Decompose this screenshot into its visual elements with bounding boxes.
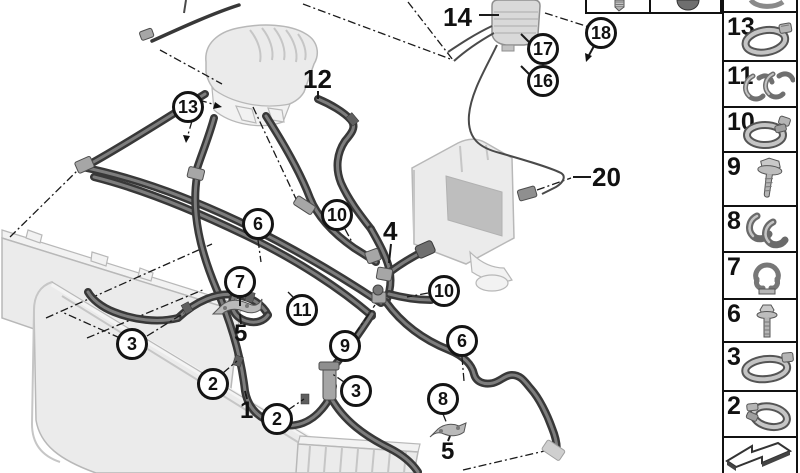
callout-number: 10 [327, 206, 347, 224]
callout-4[interactable]: 4 [383, 218, 397, 244]
holder-clip-icon [739, 255, 795, 297]
callout-number: 6 [457, 332, 467, 350]
flange-screw-icon [739, 154, 795, 204]
callout-10-right[interactable]: 10 [428, 275, 460, 307]
sidebar-item-8[interactable]: 8 [724, 207, 796, 253]
callout-13[interactable]: 13 [172, 91, 204, 123]
callout-number: 7 [235, 273, 245, 291]
sidebar-item-10[interactable]: 10 [724, 108, 796, 153]
prev-page-arrow-icon [724, 439, 794, 473]
callout-number: 3 [351, 382, 361, 400]
spring-clamp-angled-icon [739, 393, 795, 435]
callout-number: 6 [253, 215, 263, 233]
sidebar-item-11[interactable]: 11 [724, 62, 796, 108]
callout-7[interactable]: 7 [224, 266, 256, 298]
callout-20[interactable]: 20 [592, 164, 621, 190]
callout-number: 2 [208, 375, 218, 393]
sidebar-item-13[interactable]: 13 [724, 13, 796, 62]
clamp-pair-icon [739, 208, 795, 250]
sidebar-item-partial[interactable] [724, 0, 796, 13]
callout-number: 10 [434, 282, 454, 300]
callout-16[interactable]: 16 [527, 65, 559, 97]
callout-6-right[interactable]: 6 [446, 325, 478, 357]
intercooler-ghost [412, 139, 514, 291]
sidebar-item-6[interactable]: 6 [724, 300, 796, 343]
bracket-5-bottom [430, 423, 466, 437]
callout-3-left[interactable]: 3 [116, 328, 148, 360]
parts-diagram-page: 13 18 17 16 10 6 7 11 9 10 6 3 2 2 3 8 1… [0, 0, 800, 473]
callout-number: 3 [127, 335, 137, 353]
sensor-20 [517, 186, 537, 202]
callout-12[interactable]: 12 [303, 66, 332, 92]
callout-8[interactable]: 8 [427, 383, 459, 415]
callout-1[interactable]: 1 [240, 399, 253, 423]
clamp-partial-icon [739, 0, 795, 11]
callout-2-right[interactable]: 2 [261, 403, 293, 435]
callout-5-top[interactable]: 5 [234, 322, 247, 346]
sidebar-item-7[interactable]: 7 [724, 253, 796, 300]
sidebar-item-3[interactable]: 3 [724, 343, 796, 392]
callout-11[interactable]: 11 [286, 294, 318, 326]
legend-divider [649, 0, 651, 12]
callout-2-left[interactable]: 2 [197, 368, 229, 400]
flange-bolt-icon [739, 301, 795, 341]
callout-number: 17 [533, 40, 553, 58]
callout-17[interactable]: 17 [527, 33, 559, 65]
callout-number: 18 [591, 24, 611, 42]
callout-number: 2 [272, 410, 282, 428]
air-filter-ghost [206, 25, 317, 126]
clip-pair-icon [739, 64, 795, 104]
callout-number: 9 [340, 337, 350, 355]
hose-clamp-icon [739, 15, 795, 59]
callout-3-center[interactable]: 3 [340, 375, 372, 407]
plug-bottom-icon [655, 0, 715, 12]
callout-number: 13 [178, 98, 198, 116]
parts-sidebar: 13 11 [722, 0, 798, 473]
callout-number: 16 [533, 72, 553, 90]
callout-14[interactable]: 14 [443, 4, 472, 30]
callout-18[interactable]: 18 [585, 17, 617, 49]
cooling-hose-diagram-art [0, 0, 800, 473]
sidebar-item-9[interactable]: 9 [724, 153, 796, 207]
callout-number: 8 [438, 390, 448, 408]
sidebar-footer-arrow[interactable] [724, 438, 796, 473]
callout-9[interactable]: 9 [329, 330, 361, 362]
callout-5-bottom[interactable]: 5 [441, 440, 454, 464]
spring-clamp-icon [739, 109, 795, 151]
sidebar-item-2[interactable]: 2 [724, 392, 796, 438]
callout-6-left[interactable]: 6 [242, 208, 274, 240]
legend-top-box [585, 0, 722, 14]
callout-10-left[interactable]: 10 [321, 199, 353, 231]
callout-number: 11 [292, 301, 311, 319]
hose-clamp-icon [739, 345, 795, 389]
screw-bottom-icon [589, 0, 649, 12]
